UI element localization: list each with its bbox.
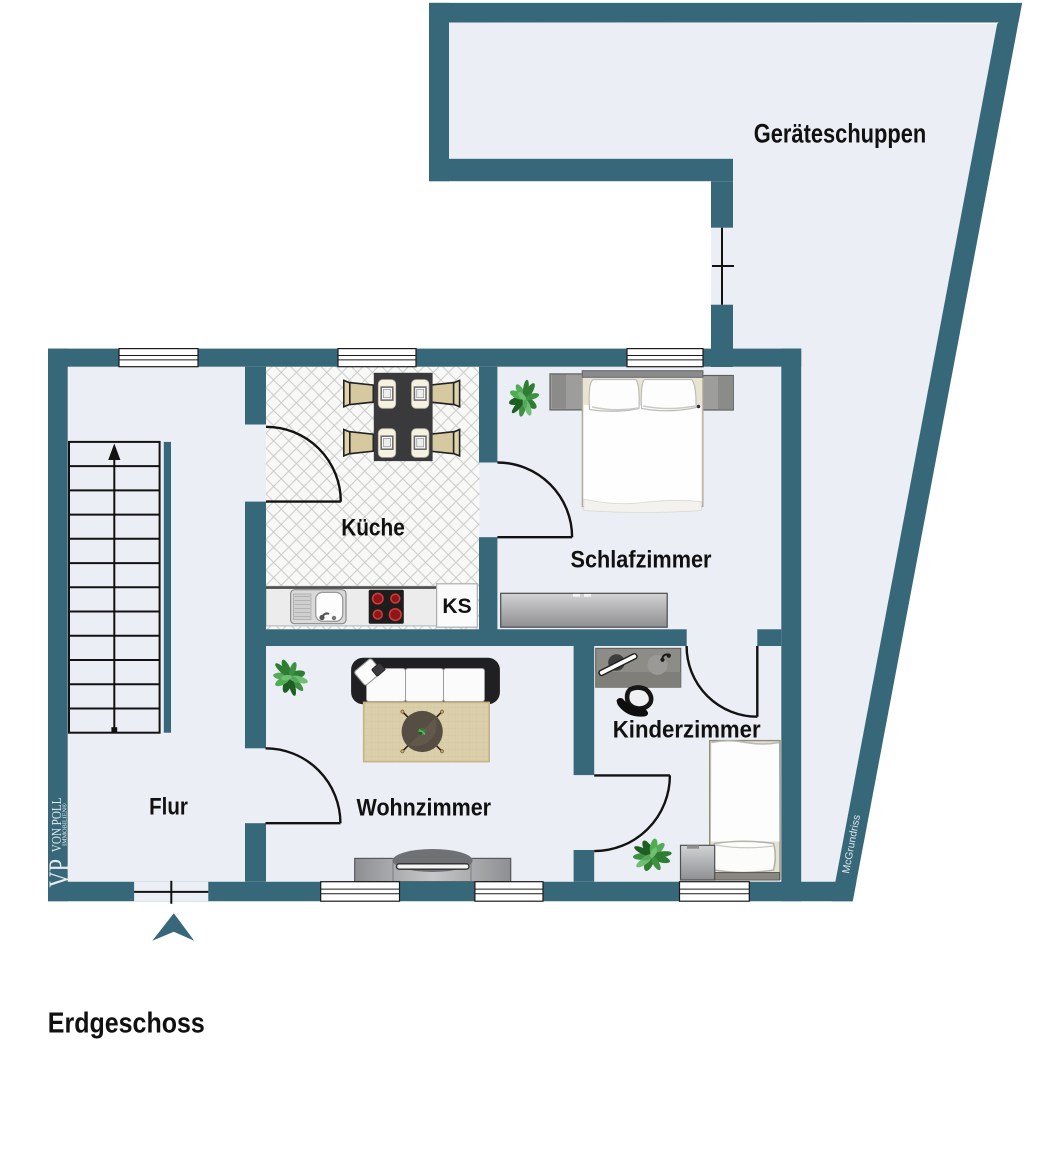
svg-text:Küche: Küche [341,515,405,542]
svg-text:Wohnzimmer: Wohnzimmer [357,794,492,821]
svg-text:Schlafzimmer: Schlafzimmer [571,546,712,573]
svg-text:Flur: Flur [149,794,188,821]
svg-text:Kinderzimmer: Kinderzimmer [613,717,761,744]
svg-text:VP: VP [45,859,76,888]
svg-text:Geräteschuppen: Geräteschuppen [754,119,927,149]
svg-text:Erdgeschoss: Erdgeschoss [48,1007,205,1039]
svg-text:IMMOBILIEN®: IMMOBILIEN® [62,803,69,846]
svg-text:KS: KS [442,595,471,618]
